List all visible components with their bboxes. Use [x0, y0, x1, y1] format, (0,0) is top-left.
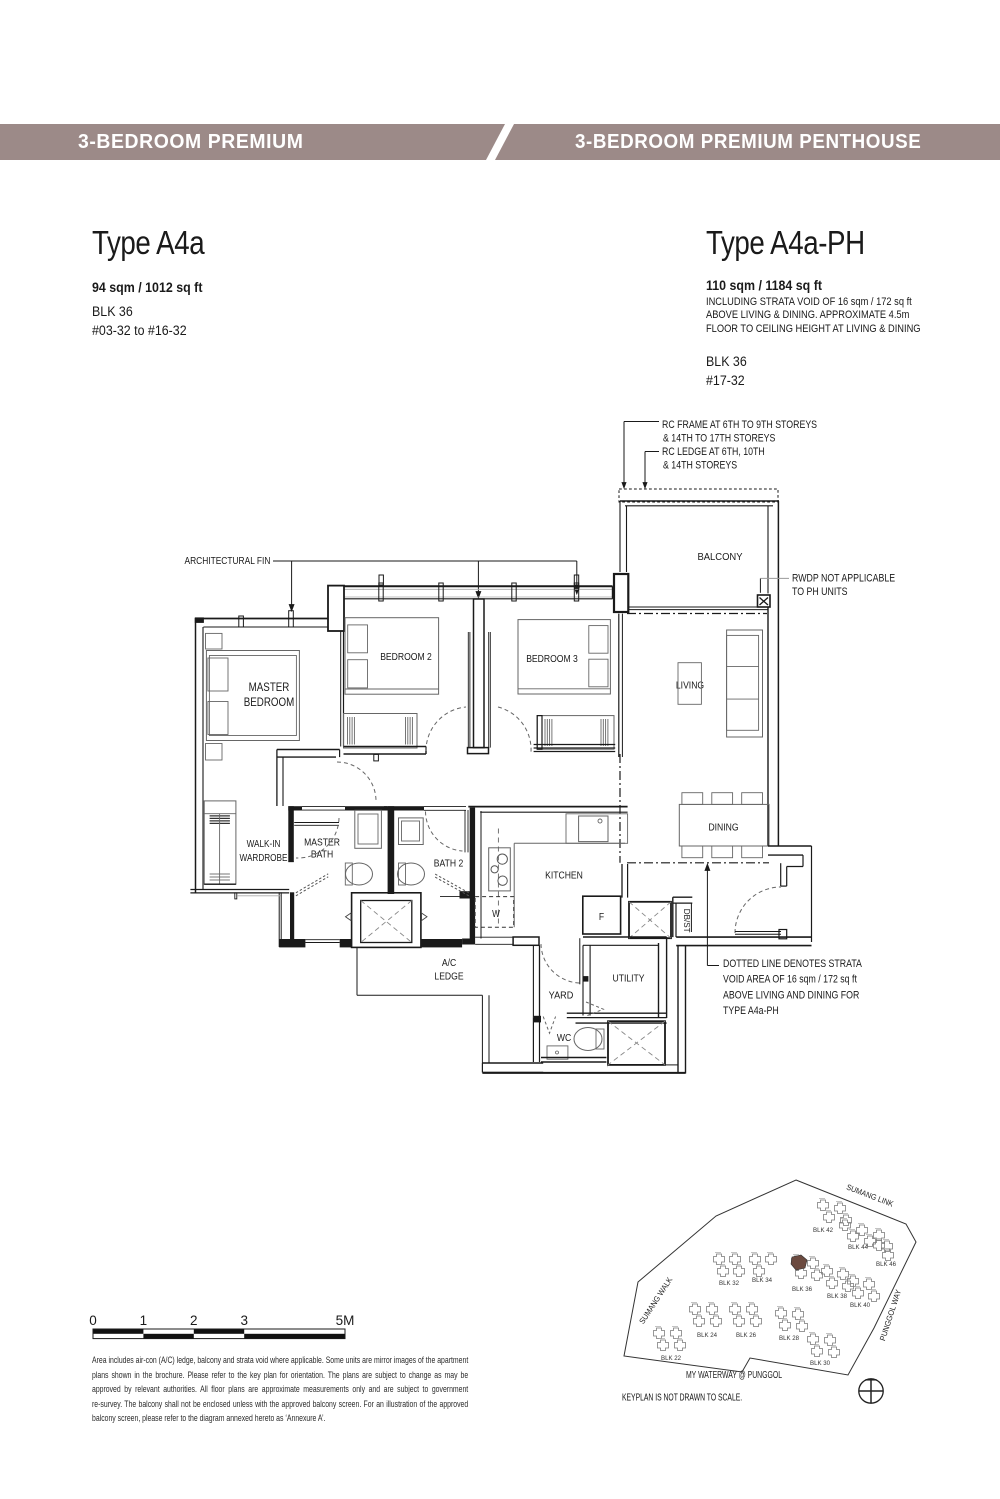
- svg-text:BLK 30: BLK 30: [810, 1360, 830, 1367]
- svg-text:DINING: DINING: [708, 822, 738, 834]
- svg-text:& 14TH TO 17TH STOREYS: & 14TH TO 17TH STOREYS: [663, 433, 776, 445]
- svg-text:WC: WC: [557, 1032, 571, 1044]
- svg-text:ABOVE LIVING AND DINING FOR: ABOVE LIVING AND DINING FOR: [723, 990, 859, 1002]
- svg-text:5M: 5M: [336, 1313, 355, 1328]
- svg-text:LEDGE: LEDGE: [434, 971, 463, 983]
- svg-text:TYPE A4a-PH: TYPE A4a-PH: [723, 1005, 779, 1017]
- svg-text:RC FRAME AT 6TH TO 9TH STOREYS: RC FRAME AT 6TH TO 9TH STOREYS: [662, 419, 817, 431]
- svg-text:BLK 44: BLK 44: [848, 1244, 868, 1251]
- svg-text:3: 3: [240, 1313, 248, 1328]
- svg-text:BLK 34: BLK 34: [752, 1277, 772, 1284]
- svg-text:BLK 42: BLK 42: [813, 1227, 833, 1234]
- svg-text:RC LEDGE AT 6TH, 10TH: RC LEDGE AT 6TH, 10TH: [662, 446, 765, 458]
- svg-text:BLK 28: BLK 28: [779, 1335, 799, 1342]
- svg-text:ARCHITECTURAL FIN: ARCHITECTURAL FIN: [185, 555, 271, 566]
- svg-text:BALCONY: BALCONY: [697, 552, 742, 564]
- svg-text:BLK 36: BLK 36: [792, 1286, 812, 1293]
- svg-text:MY WATERWAY @ PUNGGOL: MY WATERWAY @ PUNGGOL: [686, 1369, 782, 1381]
- svg-text:1: 1: [140, 1313, 148, 1328]
- svg-text:DB/ST: DB/ST: [682, 909, 692, 933]
- svg-text:BLK 38: BLK 38: [827, 1293, 847, 1300]
- svg-text:BLK 40: BLK 40: [850, 1302, 870, 1309]
- svg-text:WALK-IN: WALK-IN: [247, 838, 281, 849]
- svg-text:W: W: [492, 908, 500, 919]
- svg-text:0: 0: [89, 1313, 97, 1328]
- svg-text:F: F: [599, 911, 604, 923]
- svg-text:TO PH UNITS: TO PH UNITS: [792, 586, 848, 598]
- svg-text:WARDROBE: WARDROBE: [240, 852, 288, 863]
- svg-text:BLK 26: BLK 26: [736, 1332, 756, 1339]
- svg-text:UTILITY: UTILITY: [612, 973, 645, 985]
- svg-text:BEDROOM 2: BEDROOM 2: [380, 651, 432, 663]
- svg-text:MASTER: MASTER: [249, 681, 290, 694]
- svg-text:MASTER: MASTER: [304, 837, 340, 849]
- svg-text:& 14TH STOREYS: & 14TH STOREYS: [663, 460, 737, 472]
- svg-text:A/C: A/C: [442, 957, 456, 969]
- svg-text:SUMANG WALK: SUMANG WALK: [637, 1275, 674, 1325]
- svg-text:VOID AREA OF 16 sqm / 172 sq f: VOID AREA OF 16 sqm / 172 sq ft: [723, 974, 857, 986]
- svg-text:DOTTED LINE DENOTES STRATA: DOTTED LINE DENOTES STRATA: [723, 958, 862, 970]
- svg-text:2: 2: [190, 1313, 198, 1328]
- svg-text:SUMANG LINK: SUMANG LINK: [845, 1182, 895, 1209]
- svg-text:BLK 32: BLK 32: [719, 1280, 739, 1287]
- svg-text:BLK 22: BLK 22: [661, 1355, 681, 1362]
- svg-text:PUNGGOL WAY: PUNGGOL WAY: [878, 1288, 903, 1342]
- svg-text:KEYPLAN IS NOT DRAWN TO SCALE.: KEYPLAN IS NOT DRAWN TO SCALE.: [622, 1391, 742, 1403]
- svg-text:RWDP NOT APPLICABLE: RWDP NOT APPLICABLE: [792, 573, 895, 585]
- svg-text:BEDROOM: BEDROOM: [244, 696, 294, 709]
- svg-text:BLK 24: BLK 24: [697, 1332, 717, 1339]
- svg-text:YARD: YARD: [549, 990, 574, 1002]
- svg-text:LIVING: LIVING: [676, 680, 704, 692]
- svg-text:KITCHEN: KITCHEN: [545, 870, 583, 882]
- svg-text:BATH 2: BATH 2: [434, 858, 463, 870]
- svg-text:BEDROOM 3: BEDROOM 3: [526, 653, 578, 665]
- svg-text:BLK 46: BLK 46: [876, 1261, 896, 1268]
